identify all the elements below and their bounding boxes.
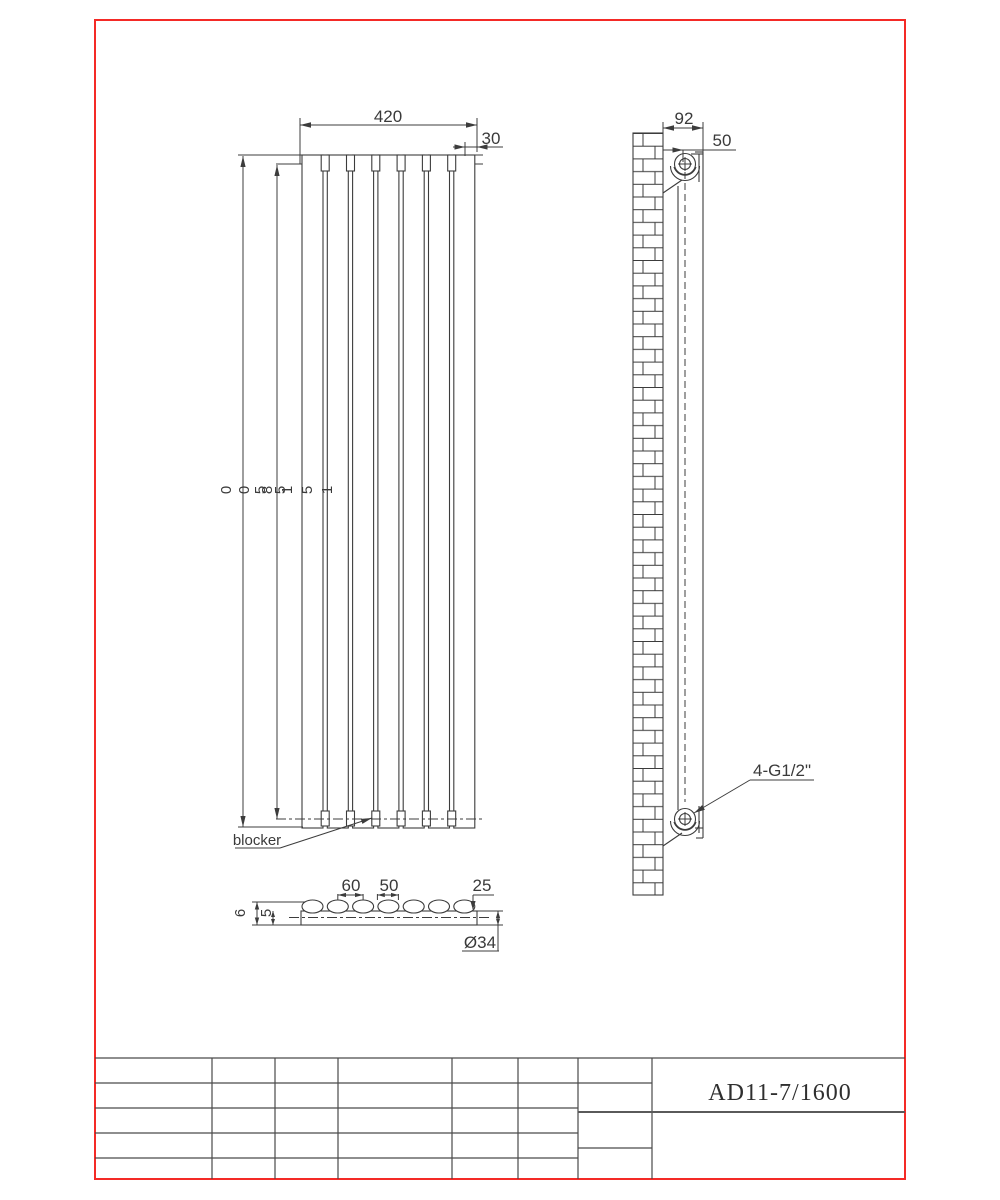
dim-50-side-label: 50 [713,131,732,150]
dim-30: 30 [453,129,503,156]
dim-60: 60 [338,876,363,900]
connection-label: 4-G1/2" [753,761,811,780]
dim-92-label: 92 [675,109,694,128]
dim-92: 92 [663,109,703,152]
dim-5-label: 5 [258,909,275,917]
dim-420-label: 420 [374,107,402,126]
height-dim-char-8: 1 [319,486,336,494]
height-dim-char-2: 0 [236,486,253,494]
side-view: 92 50 4-G1/2" [633,109,814,895]
model-number: AD11-7/1600 [708,1080,851,1106]
red-frame [95,20,905,1179]
dim-25: 25 [470,876,494,910]
blocker-label: blocker [233,832,281,849]
dim-60-label: 60 [342,876,361,895]
section-view: 60 50 25 6 5 [232,876,503,952]
dim-50-section-label: 50 [380,876,399,895]
wall [633,133,663,895]
height-dim-char-6: 1 [279,486,296,494]
dim-6-label: 6 [232,909,249,917]
height-dim-char-7: 5 [299,486,316,494]
dim-25-label: 25 [473,876,492,895]
dim-50-section: 50 [377,876,398,900]
page-border [95,20,905,1179]
radiator-profile [678,152,703,838]
front-view: 420 30 0 0 5 8 5 1 5 1 [218,107,503,849]
title-block: AD11-7/1600 [95,1058,905,1179]
dim-thickness: 6 5 [232,902,275,925]
drawing-sheet: 420 30 0 0 5 8 5 1 5 1 [0,0,1000,1200]
height-dim-char-1: 0 [218,486,235,494]
dim-diameter-label: Ø34 [464,933,496,952]
technical-drawing: 420 30 0 0 5 8 5 1 5 1 [0,0,1000,1200]
dim-30-label: 30 [482,129,501,148]
connection-callout: 4-G1/2" [694,761,814,813]
